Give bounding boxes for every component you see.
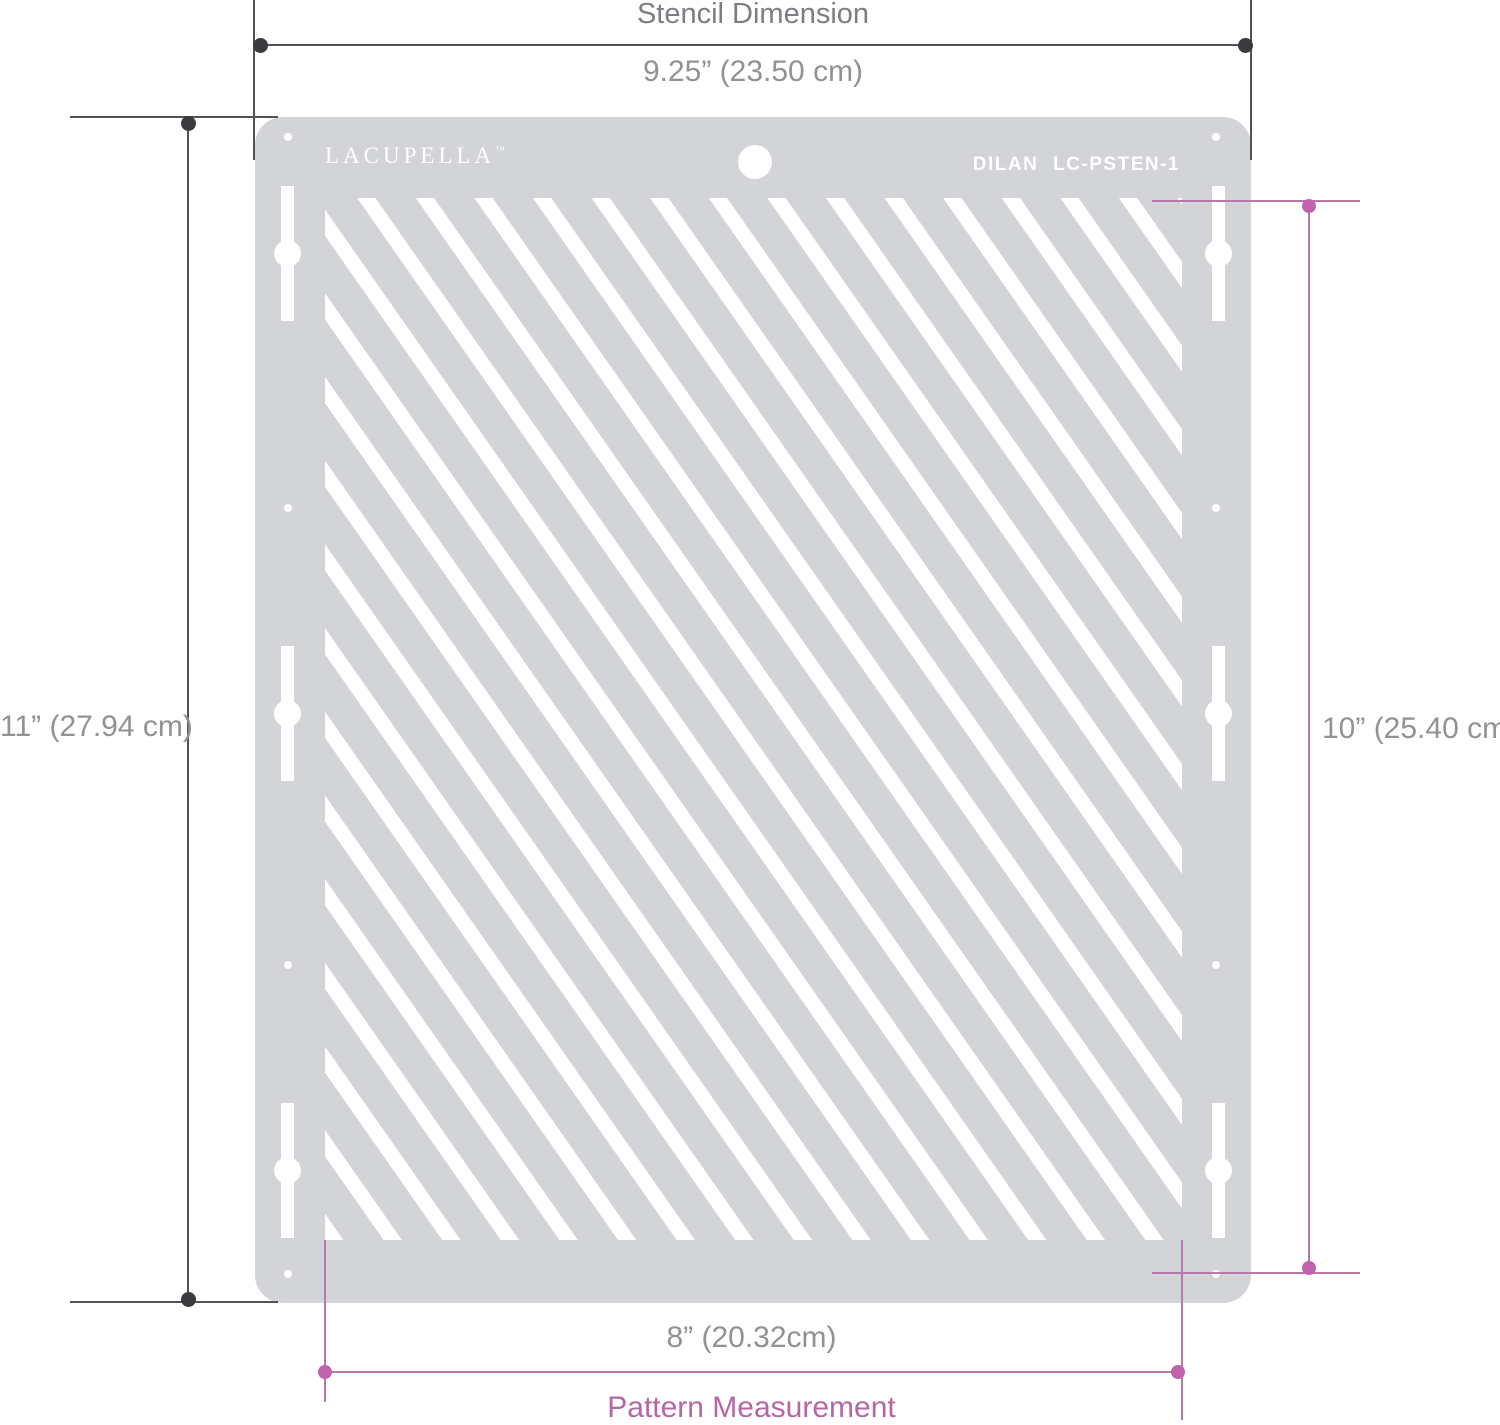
registration-mark-bottom-right — [1212, 1103, 1225, 1238]
pin-hole-mid-left-upper — [284, 504, 292, 512]
brand-text: LACUPELLA — [325, 143, 495, 168]
extension-line-pattern-top — [1152, 200, 1360, 202]
stencil-dimension-title: Stencil Dimension — [255, 0, 1251, 29]
pin-hole-bottom-left — [284, 1270, 292, 1278]
registration-hole — [1205, 1157, 1232, 1184]
extension-line-left-bottom — [70, 1301, 278, 1303]
registration-hole — [1205, 700, 1232, 727]
dimension-endpoint-dot — [253, 38, 268, 53]
dimension-line-stencil-width — [260, 44, 1246, 46]
dimension-endpoint-dot — [1238, 38, 1253, 53]
registration-hole — [274, 1157, 301, 1184]
pin-hole-mid-right-lower — [1212, 961, 1220, 969]
extension-line-pattern-bottom — [1152, 1272, 1360, 1274]
registration-hole — [274, 700, 301, 727]
pattern-height-label: 10” (25.40 cm) — [1322, 714, 1500, 744]
registration-mark-top-left — [281, 186, 294, 321]
diagonal-stripe-pattern — [325, 198, 1182, 1240]
registration-hole — [274, 240, 301, 267]
registration-mark-bottom-left — [281, 1103, 294, 1238]
dimension-endpoint-dot-pink — [1302, 1261, 1316, 1275]
dimension-endpoint-dot-pink — [318, 1365, 332, 1379]
registration-hole — [1205, 240, 1232, 267]
dimension-endpoint-dot — [181, 116, 196, 131]
stencil-dimension-diagram: LACUPELLA™ DILAN LC-PSTEN-1 Stencil Dime… — [0, 0, 1500, 1425]
pin-hole-mid-right-upper — [1212, 504, 1220, 512]
brand-logo: LACUPELLA™ — [325, 144, 505, 167]
registration-mark-top-right — [1212, 186, 1225, 321]
hanging-hole — [738, 145, 772, 179]
dimension-endpoint-dot-pink — [1302, 199, 1316, 213]
registration-mark-middle-right — [1212, 646, 1225, 781]
dimension-endpoint-dot — [181, 1292, 196, 1307]
model-code: DILAN LC-PSTEN-1 — [900, 155, 1180, 174]
pin-hole-mid-left-lower — [284, 961, 292, 969]
stencil-width-label: 9.25” (23.50 cm) — [255, 57, 1251, 87]
dimension-line-pattern-width — [325, 1371, 1178, 1373]
pin-hole-top-left — [284, 133, 292, 141]
registration-mark-middle-left — [281, 646, 294, 781]
pin-hole-top-right — [1212, 133, 1220, 141]
dimension-line-pattern-height — [1308, 206, 1310, 1268]
stencil-height-label: 11” (27.94 cm) — [0, 712, 180, 742]
dimension-endpoint-dot-pink — [1171, 1365, 1185, 1379]
extension-line-left-top — [70, 116, 278, 118]
trademark-symbol: ™ — [495, 145, 505, 156]
pattern-width-label: 8” (20.32cm) — [325, 1323, 1178, 1353]
pattern-measurement-title: Pattern Measurement — [325, 1393, 1178, 1423]
extension-line-pattern-right — [1181, 1240, 1183, 1420]
